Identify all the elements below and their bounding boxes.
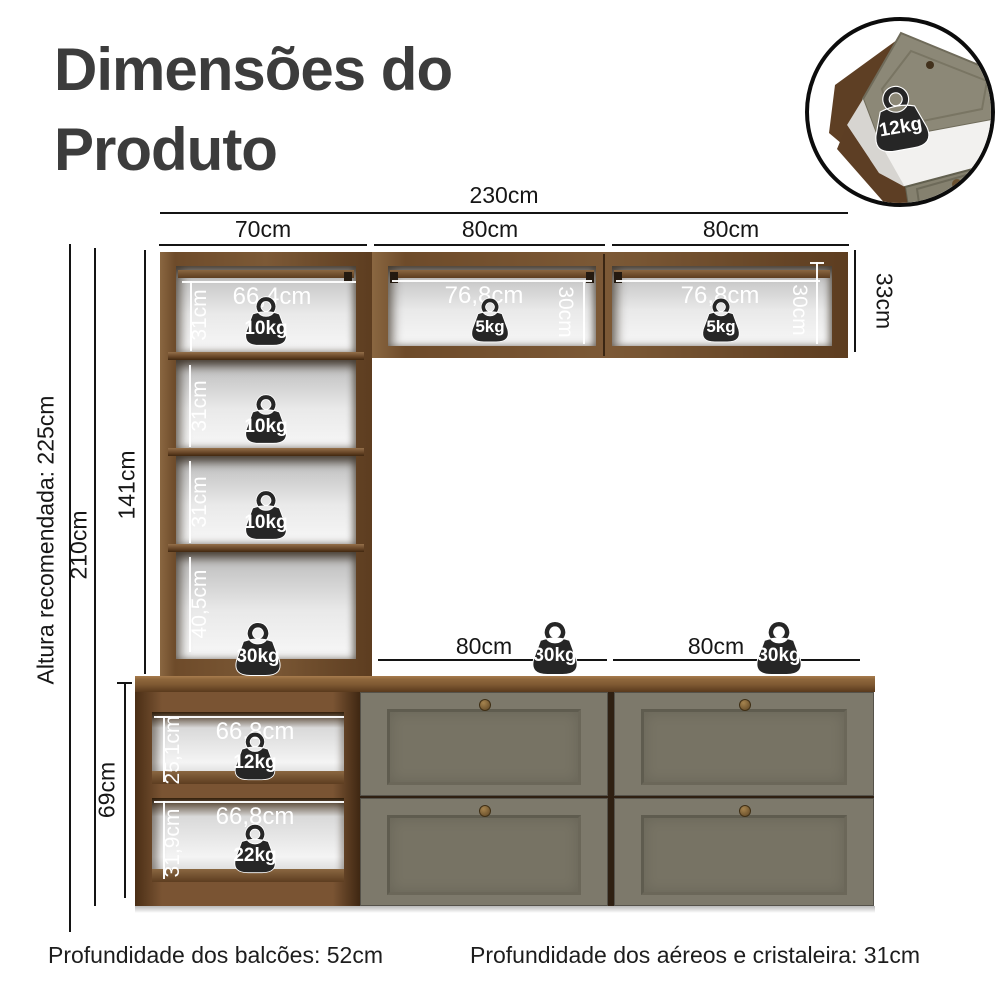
- label-counter-right-width: 80cm: [688, 633, 744, 660]
- weight-label: 5kg: [475, 317, 504, 337]
- aerial-divider-seam: [603, 254, 605, 356]
- footer-aerials-depth: Profundidade dos aéreos e cristaleira: 3…: [470, 942, 920, 969]
- drawer-knob: [739, 805, 751, 817]
- label-col2-width: 80cm: [462, 216, 518, 243]
- wline-aerial-right-tick: [810, 262, 824, 264]
- weight-shelf4: 30kg: [226, 620, 290, 678]
- drawer-mid-top: [360, 692, 608, 796]
- dimline-aerial-height: [854, 250, 856, 352]
- hutch-hanging-rail: [178, 270, 354, 278]
- page-title-line2: Produto: [54, 110, 452, 190]
- label-col1-width: 70cm: [235, 216, 291, 243]
- label-aerial-right-height: 30cm: [787, 284, 811, 335]
- label-col3-width: 80cm: [703, 216, 759, 243]
- drawer-panel: [641, 709, 847, 785]
- drawer-panel: [387, 815, 581, 895]
- weight-shelf3: 10kg: [237, 488, 295, 542]
- dimline-counter-right: [613, 659, 860, 661]
- weight-label: 30kg: [533, 645, 576, 667]
- weight-label: 22kg: [233, 845, 276, 867]
- label-total-width: 230cm: [469, 182, 538, 209]
- drawer-panel: [387, 709, 581, 785]
- dimline-hutch-height: [144, 250, 146, 674]
- weight-label: 10kg: [244, 318, 287, 340]
- floor-shadow: [135, 906, 875, 913]
- hutch-shelf-1: [168, 352, 364, 360]
- dimline-col3: [612, 244, 849, 246]
- page-title-line1: Dimensões do: [54, 30, 452, 110]
- label-counter-mid-width: 80cm: [456, 633, 512, 660]
- label-aerial-mid-height: 30cm: [553, 286, 577, 337]
- dimline-total-width: [160, 212, 848, 214]
- aerial-rail-mid: [390, 270, 594, 278]
- weight-label: 12kg: [233, 752, 276, 774]
- weight-label: 10kg: [244, 416, 287, 438]
- weight-aerial-mid: 5kg: [464, 296, 516, 344]
- drawer-detail-inset: 12kg: [805, 17, 995, 207]
- wline-aerial-mid-height: [583, 280, 585, 344]
- label-hutch-height: 141cm: [114, 450, 141, 519]
- label-base-bottom-height: 31,9cm: [161, 809, 185, 878]
- drawer-mid-bottom: [360, 798, 608, 906]
- counter-top: [135, 676, 875, 692]
- label-overall-height: 210cm: [66, 510, 93, 579]
- label-shelf3-height: 31cm: [188, 476, 212, 527]
- dimline-base-height-tick: [117, 682, 132, 684]
- drawer-panel: [641, 815, 847, 895]
- label-recommended-height: Altura recomendada: 225cm: [33, 396, 60, 685]
- drawer-right-top: [614, 692, 874, 796]
- weight-base-top: 12kg: [226, 730, 284, 782]
- dimline-col1: [159, 244, 367, 246]
- product-dimensions-diagram: Dimensões do Produto 12kg: [0, 0, 1000, 1000]
- label-shelf2-height: 31cm: [188, 380, 212, 431]
- label-aerial-height: 33cm: [871, 273, 898, 329]
- weight-label: 5kg: [706, 317, 735, 337]
- footer-counters-depth: Profundidade dos balcões: 52cm: [48, 942, 383, 969]
- weight-aerial-right: 5kg: [695, 296, 747, 344]
- weight-shelf2: 10kg: [237, 392, 295, 446]
- label-hutch-top-height: 31cm: [188, 289, 212, 340]
- weight-counter-mid: 30kg: [523, 619, 587, 677]
- hutch-shelf-2: [168, 448, 364, 456]
- label-shelf4-height: 40,5cm: [188, 570, 212, 639]
- dimline-col2: [374, 244, 605, 246]
- weight-label: 10kg: [244, 512, 287, 534]
- weight-hutch-top: 10kg: [237, 294, 295, 348]
- label-base-height: 69cm: [94, 762, 121, 818]
- drawer-knob: [479, 805, 491, 817]
- drawer-knob: [739, 699, 751, 711]
- page-title: Dimensões do Produto: [54, 30, 452, 190]
- drawer-knob: [479, 699, 491, 711]
- drawer-right-bottom: [614, 798, 874, 906]
- aerial-rail-right: [614, 270, 830, 278]
- weight-label: 30kg: [757, 645, 800, 667]
- weight-counter-right: 30kg: [747, 619, 811, 677]
- label-base-top-height: 25,1cm: [161, 716, 185, 785]
- weight-label: 30kg: [236, 646, 279, 668]
- dimline-base-height: [124, 682, 126, 898]
- hutch-shelf-3: [168, 544, 364, 552]
- weight-base-bottom: 22kg: [226, 822, 284, 875]
- inset-weight-capacity: 12kg: [855, 77, 942, 159]
- wline-aerial-right-height: [816, 262, 818, 344]
- dimline-recommended-height: [69, 244, 71, 932]
